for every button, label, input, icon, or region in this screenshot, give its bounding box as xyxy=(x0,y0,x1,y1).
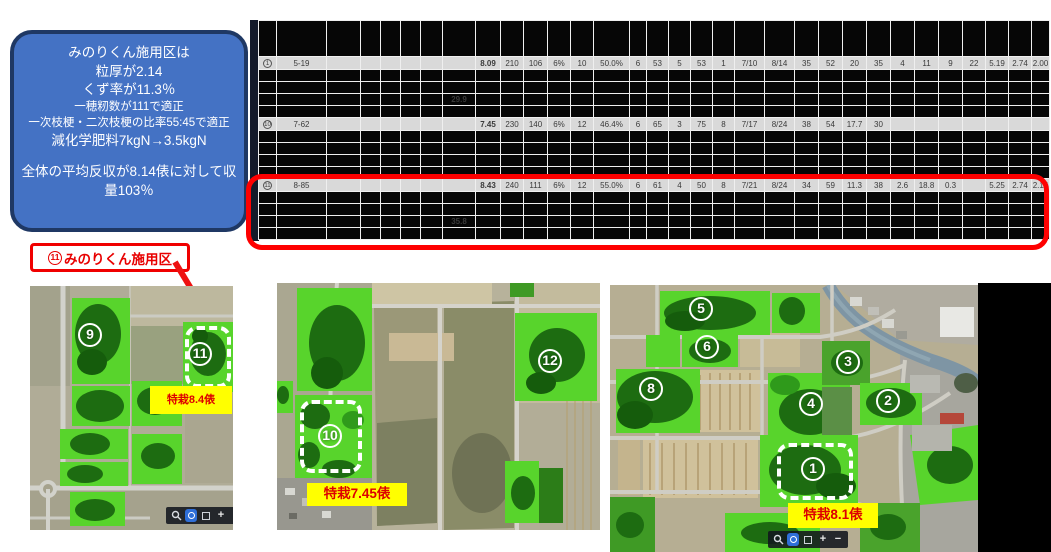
table-cell xyxy=(647,216,669,228)
value-cell: 230 xyxy=(501,118,524,131)
plus-icon: + xyxy=(820,533,826,546)
table-cell xyxy=(401,204,421,216)
table-header-cell xyxy=(1009,21,1032,57)
value-cell: 5.25 xyxy=(986,179,1009,192)
value-cell: 2.74 xyxy=(1009,57,1032,70)
table-header-cell xyxy=(713,21,735,57)
zoom-search-icon[interactable] xyxy=(772,533,784,546)
yield-table-wrap: 15-198.092101066%1050.0%65355317/108/143… xyxy=(258,20,1050,240)
table-cell xyxy=(277,82,327,94)
table-cell xyxy=(867,70,891,82)
table-cell xyxy=(986,228,1009,240)
value-cell xyxy=(1032,118,1050,131)
table-cell xyxy=(795,167,819,179)
table-cell xyxy=(401,57,421,70)
value-cell: 35 xyxy=(867,57,891,70)
table-cell xyxy=(594,94,630,106)
value-cell: 17.7 xyxy=(843,118,867,131)
table-cell xyxy=(594,216,630,228)
table-cell xyxy=(891,131,915,143)
table-cell xyxy=(421,179,443,192)
table-cell xyxy=(594,106,630,118)
zoom-out-button[interactable]: − xyxy=(230,509,233,522)
table-cell xyxy=(819,192,843,204)
field-marker-8: 8 xyxy=(639,377,663,401)
table-cell xyxy=(443,70,476,82)
table-cell xyxy=(1032,106,1050,118)
table-cell xyxy=(381,155,401,167)
table-cell xyxy=(939,204,963,216)
value-cell: 0.3 xyxy=(939,179,963,192)
table-cell xyxy=(277,131,327,143)
table-cell xyxy=(819,70,843,82)
table-cell xyxy=(691,167,713,179)
table-cell xyxy=(476,70,501,82)
table-cell xyxy=(548,143,571,155)
table-cell xyxy=(669,94,691,106)
table-cell xyxy=(669,155,691,167)
table-cell xyxy=(1009,143,1032,155)
table-cell xyxy=(795,192,819,204)
table-cell xyxy=(548,131,571,143)
field-marker-4: 4 xyxy=(799,392,823,416)
table-cell xyxy=(524,167,548,179)
table-cell xyxy=(795,155,819,167)
table-cell xyxy=(259,204,277,216)
table-cell xyxy=(669,106,691,118)
table-cell xyxy=(691,82,713,94)
table-cell xyxy=(524,228,548,240)
table-cell xyxy=(735,131,765,143)
table-cell xyxy=(647,94,669,106)
table-cell xyxy=(548,204,571,216)
table-cell xyxy=(501,192,524,204)
table-cell xyxy=(361,204,381,216)
table-cell xyxy=(476,204,501,216)
value-cell: 4 xyxy=(669,179,691,192)
table-cell xyxy=(381,167,401,179)
field-id-cell: 5-19 xyxy=(277,57,327,70)
table-cell xyxy=(1032,228,1050,240)
table-cell xyxy=(401,143,421,155)
table-header-cell xyxy=(939,21,963,57)
value-cell xyxy=(963,118,986,131)
table-cell xyxy=(524,131,548,143)
table-cell xyxy=(594,228,630,240)
field-marker-1: 1 xyxy=(801,457,825,481)
table-cell xyxy=(939,216,963,228)
table-cell xyxy=(765,94,795,106)
table-header-cell xyxy=(647,21,669,57)
value-cell: 12 xyxy=(571,118,594,131)
table-cell xyxy=(476,131,501,143)
map-toolbar: + − xyxy=(166,507,233,524)
table-cell xyxy=(501,143,524,155)
value-cell: 30 xyxy=(867,118,891,131)
table-cell xyxy=(401,167,421,179)
table-cell xyxy=(277,106,327,118)
table-cell xyxy=(259,70,277,82)
table-cell xyxy=(939,167,963,179)
table-cell xyxy=(843,167,867,179)
callout-line: 一次枝梗・二次枝梗の比率55:45で適正 xyxy=(20,116,238,132)
table-cell xyxy=(891,94,915,106)
table-cell xyxy=(867,94,891,106)
field-marker-12: 12 xyxy=(538,349,562,373)
table-cell xyxy=(443,192,476,204)
table-cell xyxy=(630,94,647,106)
table-header-cell xyxy=(915,21,939,57)
table-cell xyxy=(735,94,765,106)
table-cell xyxy=(259,167,277,179)
value-cell: 75 xyxy=(691,118,713,131)
square-select-button[interactable] xyxy=(200,509,212,522)
table-cell xyxy=(524,216,548,228)
table-cell xyxy=(647,192,669,204)
table-cell xyxy=(939,106,963,118)
value-cell: 6 xyxy=(630,179,647,192)
table-cell xyxy=(277,155,327,167)
table-cell xyxy=(795,216,819,228)
table-cell xyxy=(277,192,327,204)
table-cell xyxy=(327,204,361,216)
field-marker-5: 5 xyxy=(689,297,713,321)
zoom-out-button[interactable]: − xyxy=(832,533,844,546)
table-cell xyxy=(443,57,476,70)
table-cell xyxy=(647,143,669,155)
table-cell xyxy=(361,167,381,179)
table-cell xyxy=(571,228,594,240)
table-cell xyxy=(401,155,421,167)
table-cell xyxy=(915,167,939,179)
circled-number: 1 xyxy=(263,59,272,68)
table-cell xyxy=(421,167,443,179)
callout-line: 粒厚が2.14 xyxy=(20,63,238,82)
table-header-cell xyxy=(594,21,630,57)
table-cell xyxy=(765,204,795,216)
table-cell xyxy=(548,106,571,118)
table-cell xyxy=(259,143,277,155)
table-cell xyxy=(501,106,524,118)
table-cell xyxy=(401,70,421,82)
table-cell xyxy=(867,82,891,94)
table-cell xyxy=(259,106,277,118)
table-cell xyxy=(594,192,630,204)
table-cell xyxy=(691,94,713,106)
table-cell xyxy=(691,131,713,143)
table-header-cell xyxy=(259,21,277,57)
table-cell xyxy=(939,143,963,155)
table-cell xyxy=(915,70,939,82)
table-cell xyxy=(630,192,647,204)
table-cell xyxy=(327,167,361,179)
table-cell xyxy=(795,143,819,155)
table-cell xyxy=(735,216,765,228)
table-cell xyxy=(1009,228,1032,240)
table-cell xyxy=(476,82,501,94)
table-cell xyxy=(259,82,277,94)
table-cell xyxy=(669,167,691,179)
table-cell xyxy=(571,216,594,228)
layer-select-button[interactable] xyxy=(787,533,799,546)
value-cell: 6 xyxy=(630,118,647,131)
table-cell xyxy=(939,94,963,106)
table-cell xyxy=(647,82,669,94)
table-cell xyxy=(1032,216,1050,228)
table-cell xyxy=(277,216,327,228)
table-cell xyxy=(630,216,647,228)
table-cell xyxy=(443,204,476,216)
table-cell xyxy=(327,94,361,106)
value-cell: 55.0% xyxy=(594,179,630,192)
table-cell xyxy=(421,228,443,240)
table-cell xyxy=(381,94,401,106)
table-cell xyxy=(421,216,443,228)
table-cell xyxy=(361,192,381,204)
callout-line: 全体の平均反収が8.14俵に対して収量103％ xyxy=(20,163,238,200)
table-cell xyxy=(501,131,524,143)
table-cell xyxy=(819,82,843,94)
table-cell xyxy=(594,155,630,167)
table-cell xyxy=(381,143,401,155)
table-cell xyxy=(843,155,867,167)
table-cell xyxy=(765,155,795,167)
layer-select-button[interactable] xyxy=(185,509,197,522)
table-cell xyxy=(765,131,795,143)
table-cell xyxy=(915,216,939,228)
table-cell xyxy=(867,216,891,228)
value-cell: 2.00 xyxy=(1032,57,1050,70)
table-cell xyxy=(524,82,548,94)
table-cell xyxy=(548,94,571,106)
table-cell xyxy=(548,216,571,228)
value-cell: 7/21 xyxy=(735,179,765,192)
yield-tag-8-4: 特栽8.4俵 xyxy=(150,386,232,414)
table-cell xyxy=(867,204,891,216)
table-cell xyxy=(735,143,765,155)
table-cell xyxy=(327,179,361,192)
table-cell xyxy=(691,155,713,167)
table-cell xyxy=(361,106,381,118)
callout-line: くず率が11.3％ xyxy=(20,81,238,100)
table-cell xyxy=(421,106,443,118)
table-cell xyxy=(476,216,501,228)
table-cell xyxy=(669,131,691,143)
value-cell: 7/17 xyxy=(735,118,765,131)
value-cell xyxy=(963,179,986,192)
table-cell xyxy=(891,167,915,179)
table-cell xyxy=(501,82,524,94)
table-cell xyxy=(891,82,915,94)
table-cell xyxy=(327,228,361,240)
table-cell xyxy=(259,216,277,228)
table-cell xyxy=(476,167,501,179)
square-select-button[interactable] xyxy=(802,533,814,546)
table-cell xyxy=(476,155,501,167)
table-cell xyxy=(891,192,915,204)
table-header-cell xyxy=(421,21,443,57)
table-cell xyxy=(891,155,915,167)
table-cell xyxy=(1009,216,1032,228)
table-cell xyxy=(594,82,630,94)
table-cell xyxy=(963,228,986,240)
table-cell xyxy=(713,94,735,106)
value-cell: 3 xyxy=(669,118,691,131)
table-cell xyxy=(548,70,571,82)
value-cell: 11.3 xyxy=(843,179,867,192)
table-header-cell xyxy=(963,21,986,57)
table-cell xyxy=(915,106,939,118)
table-cell xyxy=(843,70,867,82)
table-cell xyxy=(986,216,1009,228)
table-cell xyxy=(361,70,381,82)
value-cell: 10 xyxy=(571,57,594,70)
table-cell xyxy=(443,143,476,155)
circle-icon xyxy=(188,512,195,519)
table-cell xyxy=(647,70,669,82)
value-cell: 65 xyxy=(647,118,669,131)
table-cell xyxy=(571,131,594,143)
table-cell xyxy=(421,204,443,216)
value-cell: 54 xyxy=(819,118,843,131)
table-cell xyxy=(381,204,401,216)
table-cell xyxy=(939,155,963,167)
value-cell: 210 xyxy=(501,57,524,70)
table-cell xyxy=(524,155,548,167)
table-cell xyxy=(381,70,401,82)
table-cell xyxy=(963,155,986,167)
table-cell xyxy=(735,106,765,118)
table-cell xyxy=(986,70,1009,82)
table-cell xyxy=(986,82,1009,94)
table-cell xyxy=(843,192,867,204)
table-cell xyxy=(795,228,819,240)
aerial-map-left: 9 11 特栽8.4俵 + − xyxy=(30,286,233,530)
table-cell xyxy=(986,94,1009,106)
circle-icon xyxy=(790,536,797,543)
table-cell xyxy=(361,57,381,70)
square-icon xyxy=(804,536,812,544)
table-cell xyxy=(277,94,327,106)
table-cell xyxy=(1009,204,1032,216)
table-cell xyxy=(843,216,867,228)
table-cell xyxy=(891,70,915,82)
value-cell: 8/24 xyxy=(765,118,795,131)
table-cell xyxy=(421,57,443,70)
table-cell xyxy=(401,228,421,240)
table-cell xyxy=(843,131,867,143)
value-cell: 38 xyxy=(795,118,819,131)
circled-number: 11 xyxy=(263,181,272,190)
table-cell xyxy=(259,155,277,167)
table-header-cell xyxy=(501,21,524,57)
table-cell xyxy=(630,204,647,216)
zoom-in-button[interactable]: + xyxy=(215,509,227,522)
table-cell xyxy=(735,167,765,179)
table-cell xyxy=(819,131,843,143)
table-cell xyxy=(765,228,795,240)
table-cell xyxy=(843,94,867,106)
table-cell xyxy=(1009,82,1032,94)
zoom-search-icon[interactable] xyxy=(170,509,182,522)
value-cell: 8/24 xyxy=(765,179,795,192)
table-cell xyxy=(867,155,891,167)
value-cell: 18.8 xyxy=(915,179,939,192)
table-cell xyxy=(986,192,1009,204)
table-cell xyxy=(765,216,795,228)
table-cell xyxy=(361,228,381,240)
value-cell: 2.6 xyxy=(891,179,915,192)
table-cell xyxy=(630,143,647,155)
table-cell xyxy=(867,143,891,155)
table-cell xyxy=(443,167,476,179)
table-cell xyxy=(594,167,630,179)
callout-line: 減化学肥料7kgN→3.5kgN xyxy=(20,132,238,151)
value-cell: 8/14 xyxy=(765,57,795,70)
value-cell: 2.74 xyxy=(1009,179,1032,192)
table-cell xyxy=(819,106,843,118)
zoom-in-button[interactable]: + xyxy=(817,533,829,546)
table-cell xyxy=(1032,70,1050,82)
circled-number: 10 xyxy=(263,120,272,129)
table-cell xyxy=(277,143,327,155)
minus-icon: − xyxy=(835,533,841,546)
callout-line xyxy=(20,150,238,163)
table-cell xyxy=(571,192,594,204)
table-cell xyxy=(765,167,795,179)
table-header-cell xyxy=(548,21,571,57)
table-cell xyxy=(843,228,867,240)
table-cell xyxy=(691,106,713,118)
table-cell xyxy=(891,106,915,118)
value-cell: 52 xyxy=(819,57,843,70)
table-header-cell xyxy=(443,21,476,57)
table-cell xyxy=(421,192,443,204)
row-number-cell: 10 xyxy=(259,118,277,131)
table-cell xyxy=(571,204,594,216)
table-cell xyxy=(669,192,691,204)
table-cell xyxy=(669,143,691,155)
table-cell xyxy=(647,106,669,118)
field-marker-2: 2 xyxy=(876,389,900,413)
table-cell xyxy=(548,155,571,167)
table-cell xyxy=(843,106,867,118)
table-cell xyxy=(669,216,691,228)
table-cell xyxy=(259,94,277,106)
value-cell: 111 xyxy=(524,179,548,192)
table-cell xyxy=(735,155,765,167)
table-header-cell xyxy=(571,21,594,57)
table-cell xyxy=(443,118,476,131)
table-cell xyxy=(571,167,594,179)
table-cell xyxy=(1032,167,1050,179)
table-cell xyxy=(735,204,765,216)
value-cell: 34 xyxy=(795,179,819,192)
table-header-cell xyxy=(843,21,867,57)
table-cell xyxy=(524,143,548,155)
table-cell xyxy=(476,106,501,118)
table-cell xyxy=(361,118,381,131)
table-cell xyxy=(327,82,361,94)
table-cell xyxy=(594,70,630,82)
table-header-cell xyxy=(867,21,891,57)
table-cell xyxy=(524,106,548,118)
table-cell xyxy=(691,192,713,204)
table-cell xyxy=(443,82,476,94)
table-cell xyxy=(381,179,401,192)
table-cell xyxy=(571,82,594,94)
table-cell xyxy=(713,143,735,155)
